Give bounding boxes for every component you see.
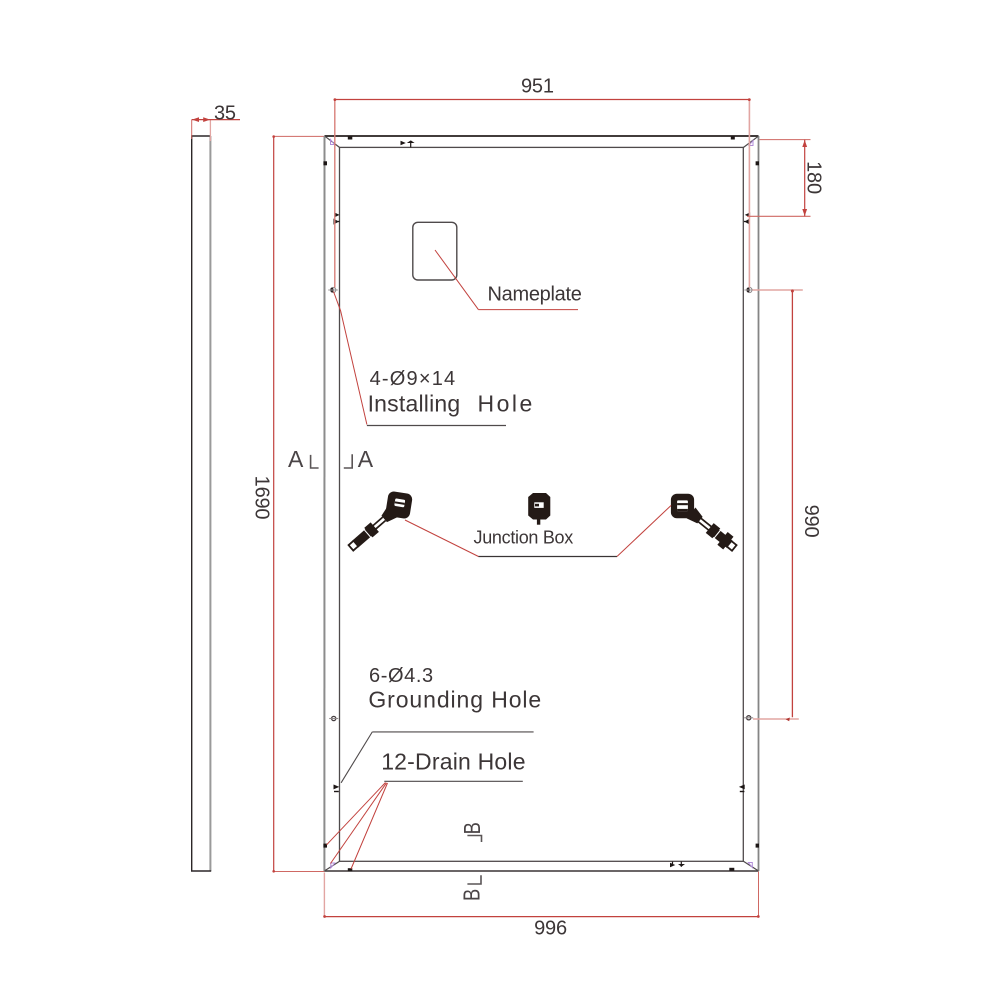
svg-text:Junction Box: Junction Box bbox=[474, 528, 574, 548]
svg-text:990: 990 bbox=[800, 505, 822, 538]
svg-text:A: A bbox=[288, 446, 304, 472]
svg-text:A: A bbox=[358, 446, 374, 472]
svg-text:Grounding Hole: Grounding Hole bbox=[368, 687, 542, 713]
svg-text:B: B bbox=[460, 822, 485, 834]
svg-text:Nameplate: Nameplate bbox=[488, 284, 582, 306]
svg-text:12-Drain Hole: 12-Drain Hole bbox=[381, 748, 526, 774]
svg-text:InstallingHole: InstallingHole bbox=[368, 390, 535, 416]
svg-text:B: B bbox=[460, 889, 485, 901]
svg-text:951: 951 bbox=[521, 75, 554, 97]
svg-text:4-Ø9×14: 4-Ø9×14 bbox=[370, 368, 457, 390]
svg-text:1690: 1690 bbox=[251, 476, 273, 520]
svg-text:6-Ø4.3: 6-Ø4.3 bbox=[369, 665, 434, 687]
svg-text:35: 35 bbox=[214, 103, 236, 125]
svg-text:996: 996 bbox=[534, 918, 567, 940]
svg-text:180: 180 bbox=[802, 161, 824, 194]
